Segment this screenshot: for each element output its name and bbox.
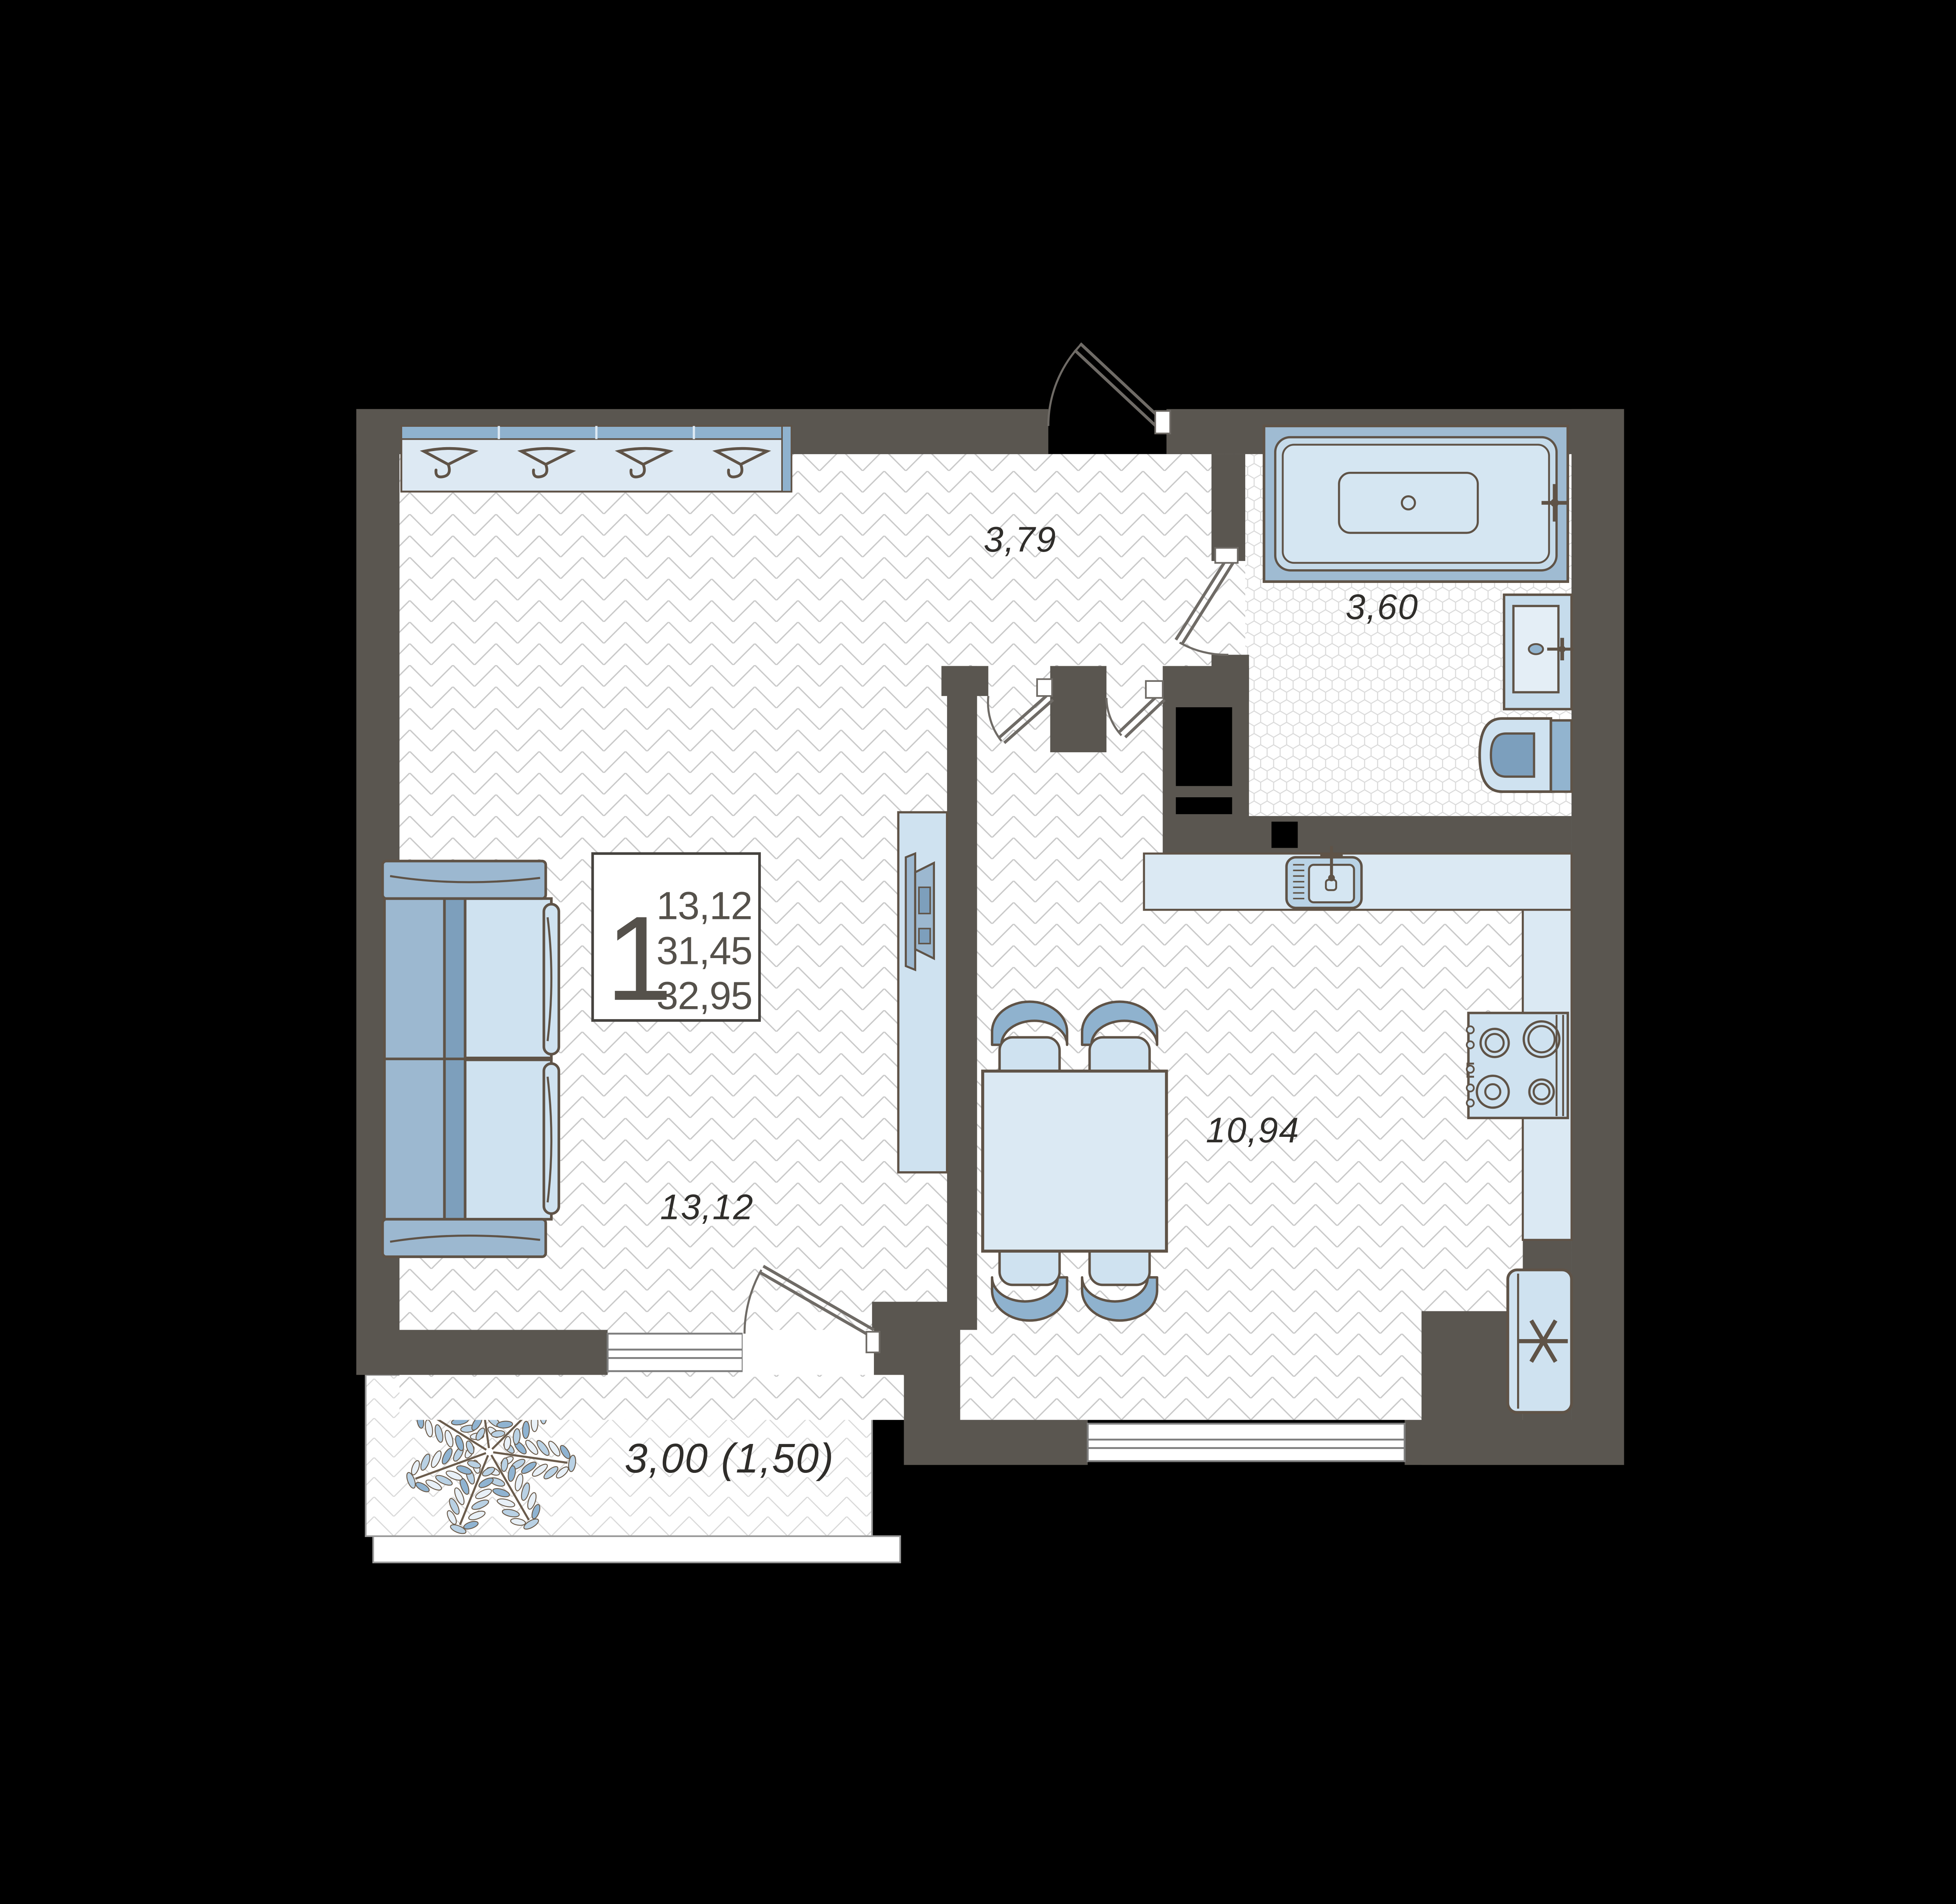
unit-info-card: 1 13,12 31,45 32,95 (593, 854, 760, 1026)
toilet-icon (1480, 719, 1571, 792)
living-room-window (608, 1334, 742, 1371)
bathroom-area-label: 3,60 (1346, 588, 1419, 627)
balcony-area-label: 3,00 (1,50) (625, 1436, 834, 1481)
tv-stand (898, 812, 947, 1172)
shaft-box (1176, 797, 1232, 814)
balcony-slab (373, 1536, 900, 1562)
sofa (383, 861, 559, 1257)
floor-plan: 3,00 (1,50) (0, 0, 1956, 1904)
bathtub-icon (1264, 426, 1568, 582)
fridge (1508, 1270, 1571, 1412)
hallway-area-label: 3,79 (983, 520, 1057, 559)
wall-hall-bath-upper (1212, 454, 1245, 561)
apartment-area-value: 31,45 (656, 929, 752, 973)
shaft-box (1271, 822, 1298, 848)
shaft-box (1176, 707, 1232, 786)
entrance-door (1048, 343, 1170, 433)
kitchen-area-label: 10,94 (1206, 1111, 1300, 1150)
stove-icon (1467, 1013, 1568, 1118)
living-area-value: 13,12 (656, 884, 752, 928)
wall-living-kitchen (947, 666, 977, 1330)
wall-hall-block (1050, 666, 1107, 752)
wall-living-bottom-left (356, 1330, 608, 1375)
wall-hall-stub (942, 666, 989, 696)
kitchen-window (1088, 1424, 1404, 1461)
living-room-area-label: 13,12 (660, 1188, 754, 1227)
wall-kitchen-bottom-left (904, 1420, 1088, 1465)
tv-icon (906, 854, 934, 970)
total-area-value: 32,95 (656, 974, 752, 1018)
wall-right (1571, 409, 1624, 1465)
wardrobe (401, 426, 791, 492)
wall-hall-bath-lower (1212, 655, 1249, 700)
dining-table (983, 1071, 1167, 1251)
bath-sink-icon (1504, 595, 1573, 709)
balcony-door-threshold (742, 1330, 874, 1375)
